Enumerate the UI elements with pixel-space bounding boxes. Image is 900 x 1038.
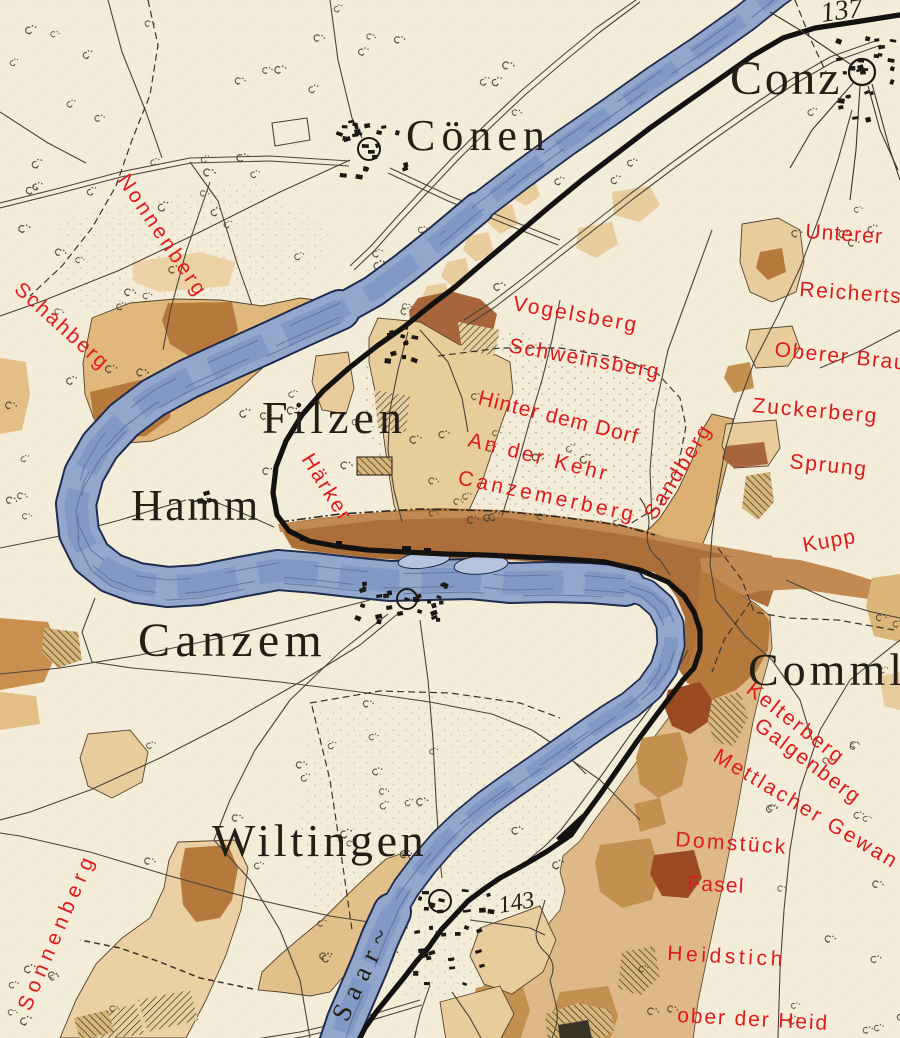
svg-text:Commlingen: Commlingen (748, 644, 900, 695)
svg-text:Filzen: Filzen (262, 392, 407, 443)
svg-text:Canzem: Canzem (138, 614, 327, 667)
svg-text:Wiltingen: Wiltingen (212, 815, 427, 866)
svg-text:Hamm: Hamm (131, 481, 261, 530)
svg-text:Cönen: Cönen (406, 111, 551, 160)
svg-text:Conz: Conz (730, 52, 842, 105)
svg-text:Fasel: Fasel (687, 872, 745, 898)
